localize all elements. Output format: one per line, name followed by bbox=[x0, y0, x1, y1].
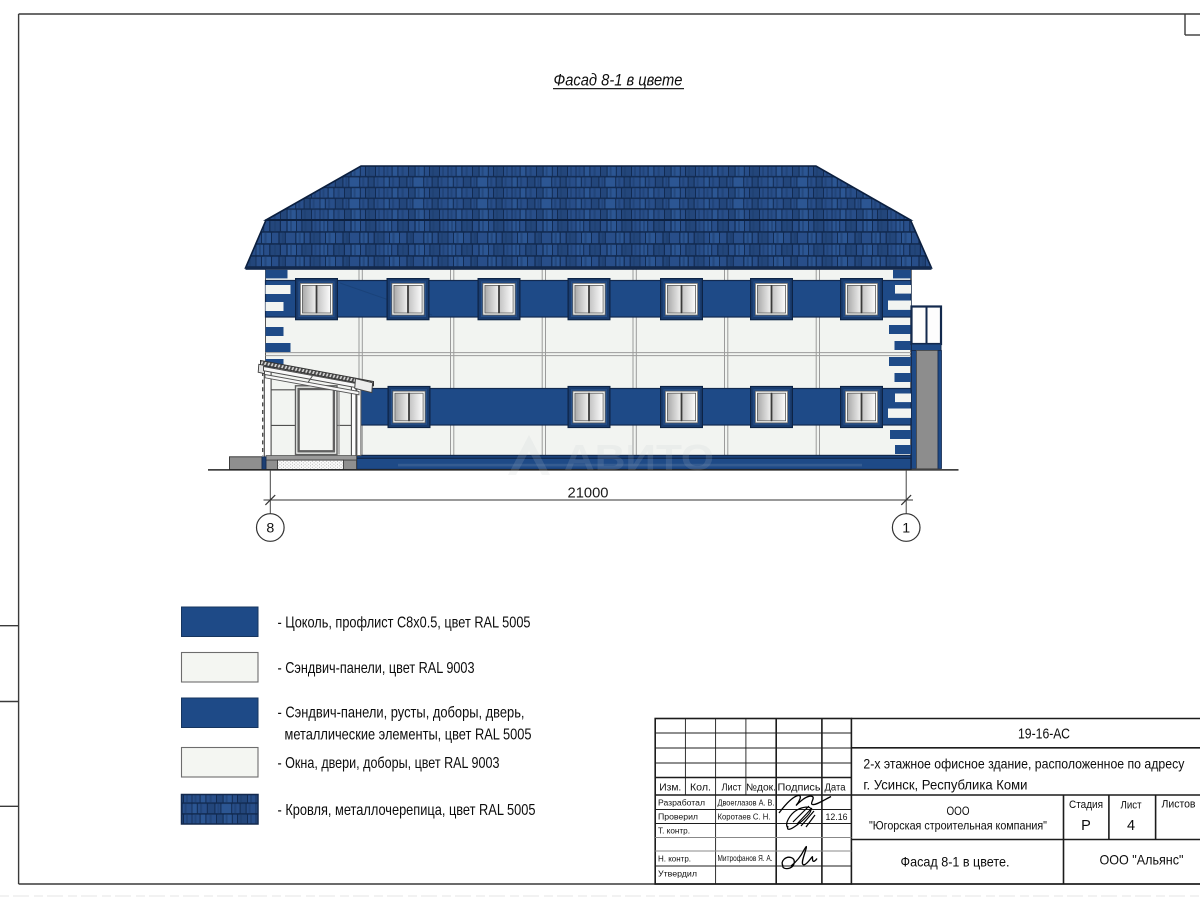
svg-text:Р: Р bbox=[1081, 818, 1091, 834]
svg-text:19-16-АС: 19-16-АС bbox=[1018, 727, 1070, 743]
svg-text:- Сэндвич-панели, русты, добор: - Сэндвич-панели, русты, доборы, дверь, bbox=[278, 704, 525, 721]
svg-text:Листов: Листов bbox=[1162, 798, 1196, 810]
svg-text:Дата: Дата bbox=[825, 782, 846, 793]
svg-text:АВИТО: АВИТО bbox=[564, 437, 714, 478]
svg-text:- Окна, двери, доборы, цвет RA: - Окна, двери, доборы, цвет RAL 9003 bbox=[278, 755, 500, 772]
svg-text:Коротаев С. Н.: Коротаев С. Н. bbox=[718, 813, 771, 822]
svg-text:"Югорская строительная компани: "Югорская строительная компания" bbox=[869, 819, 1047, 833]
svg-text:Лист: Лист bbox=[1121, 799, 1142, 811]
svg-text:г. Усинск, Республика Коми: г. Усинск, Республика Коми bbox=[863, 778, 1027, 793]
svg-text:- Сэндвич-панели, цвет RAL 900: - Сэндвич-панели, цвет RAL 9003 bbox=[278, 660, 475, 677]
svg-text:Двоеглазов А. В.: Двоеглазов А. В. bbox=[718, 799, 775, 808]
svg-text:№док.: №док. bbox=[746, 782, 776, 793]
svg-text:2-х этажное офисное здание, ра: 2-х этажное офисное здание, расположенно… bbox=[863, 757, 1184, 772]
svg-text:- Цоколь, профлист С8х0.5, цве: - Цоколь, профлист С8х0.5, цвет RAL 5005 bbox=[278, 614, 531, 631]
svg-text:Кол.: Кол. bbox=[690, 782, 711, 793]
svg-text:8: 8 bbox=[266, 521, 274, 537]
svg-text:Проверил: Проверил bbox=[658, 812, 698, 822]
svg-text:Изм.: Изм. bbox=[659, 782, 681, 793]
svg-text:Подпись: Подпись bbox=[778, 782, 821, 793]
svg-text:Фасад 8-1 в цвете.: Фасад 8-1 в цвете. bbox=[901, 853, 1010, 869]
svg-text:металлические элементы, цвет R: металлические элементы, цвет RAL 5005 bbox=[285, 727, 532, 744]
svg-text:Лист: Лист bbox=[722, 782, 742, 793]
svg-text:Стадия: Стадия bbox=[1069, 799, 1103, 811]
svg-text:12.16: 12.16 bbox=[826, 812, 848, 823]
svg-text:Разработал: Разработал bbox=[658, 798, 705, 808]
svg-text:4: 4 bbox=[1127, 818, 1135, 834]
svg-text:1: 1 bbox=[902, 521, 910, 537]
svg-text:Фасад 8-1 в цвете: Фасад 8-1 в цвете bbox=[554, 72, 683, 90]
svg-text:ООО "Альянс": ООО "Альянс" bbox=[1100, 851, 1184, 867]
svg-text:ООО: ООО bbox=[947, 804, 970, 818]
svg-text:Утвердил: Утвердил bbox=[658, 869, 697, 879]
svg-text:Т. контр.: Т. контр. bbox=[658, 826, 690, 836]
svg-text:21000: 21000 bbox=[568, 485, 609, 501]
svg-text:Н. контр.: Н. контр. bbox=[658, 853, 691, 863]
svg-text:- Кровля, металлочерепица, цве: - Кровля, металлочерепица, цвет RAL 5005 bbox=[278, 802, 536, 819]
svg-text:Митрофанов Я. А.: Митрофанов Я. А. bbox=[718, 854, 773, 863]
